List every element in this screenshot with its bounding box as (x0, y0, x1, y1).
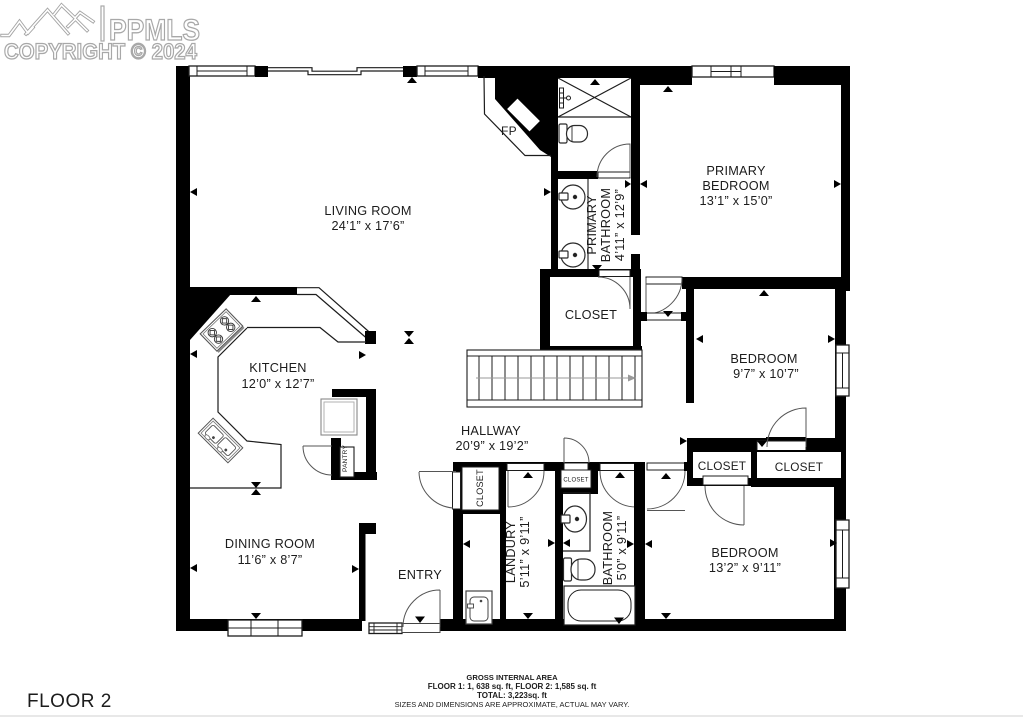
svg-text:BATHROOM: BATHROOM (599, 188, 613, 262)
svg-text:ENTRY: ENTRY (398, 568, 442, 582)
svg-text:COPYRIGHT © 2024: COPYRIGHT © 2024 (4, 39, 197, 64)
svg-text:KITCHEN: KITCHEN (249, 361, 306, 375)
svg-text:12’0” x 12’7”: 12’0” x 12’7” (241, 377, 314, 391)
svg-text:BEDROOM: BEDROOM (730, 352, 797, 366)
svg-text:LANDURY: LANDURY (504, 521, 518, 583)
svg-text:13’2” x 9’11”: 13’2” x 9’11” (709, 561, 781, 575)
svg-text:5’11” x 9’11”: 5’11” x 9’11” (518, 516, 532, 587)
svg-text:CLOSET: CLOSET (563, 478, 588, 484)
svg-text:BATHROOM: BATHROOM (601, 511, 615, 585)
svg-text:SIZES AND DIMENSIONS ARE APPRO: SIZES AND DIMENSIONS ARE APPROXIMATE, AC… (395, 700, 630, 709)
svg-text:PRIMARY: PRIMARY (585, 195, 599, 255)
svg-text:PANTRY: PANTRY (342, 445, 349, 472)
svg-text:4’11” x 12’9”: 4’11” x 12’9” (613, 189, 627, 261)
svg-text:CLOSET: CLOSET (475, 469, 485, 507)
svg-text:LIVING ROOM: LIVING ROOM (324, 204, 411, 218)
svg-text:13’1” x 15’0”: 13’1” x 15’0” (699, 194, 772, 208)
svg-text:FLOOR 1: 1, 638 sq. ft, FLOOR: FLOOR 1: 1, 638 sq. ft, FLOOR 2: 1,585 s… (428, 682, 597, 691)
svg-text:9’7” x 10’7”: 9’7” x 10’7” (733, 367, 799, 381)
svg-text:FP: FP (501, 124, 517, 138)
svg-text:TOTAL: 3,223sq. ft: TOTAL: 3,223sq. ft (477, 691, 547, 700)
svg-text:5’0” x 9’11”: 5’0” x 9’11” (615, 516, 629, 581)
svg-text:CLOSET: CLOSET (775, 460, 823, 474)
svg-text:CLOSET: CLOSET (698, 459, 746, 473)
svg-text:BEDROOM: BEDROOM (702, 179, 769, 193)
svg-text:24’1” x 17’6”: 24’1” x 17’6” (331, 219, 404, 233)
svg-text:GROSS INTERNAL AREA: GROSS INTERNAL AREA (466, 673, 558, 682)
svg-text:DINING ROOM: DINING ROOM (225, 537, 315, 551)
svg-text:CLOSET: CLOSET (565, 308, 617, 322)
svg-text:HALLWAY: HALLWAY (461, 424, 521, 438)
svg-text:20’9” x 19’2”: 20’9” x 19’2” (455, 439, 528, 453)
svg-text:11’6” x 8’7”: 11’6” x 8’7” (238, 553, 303, 567)
svg-text:FLOOR 2: FLOOR 2 (27, 691, 112, 712)
svg-text:PRIMARY: PRIMARY (706, 164, 766, 178)
svg-text:BEDROOM: BEDROOM (711, 546, 778, 560)
